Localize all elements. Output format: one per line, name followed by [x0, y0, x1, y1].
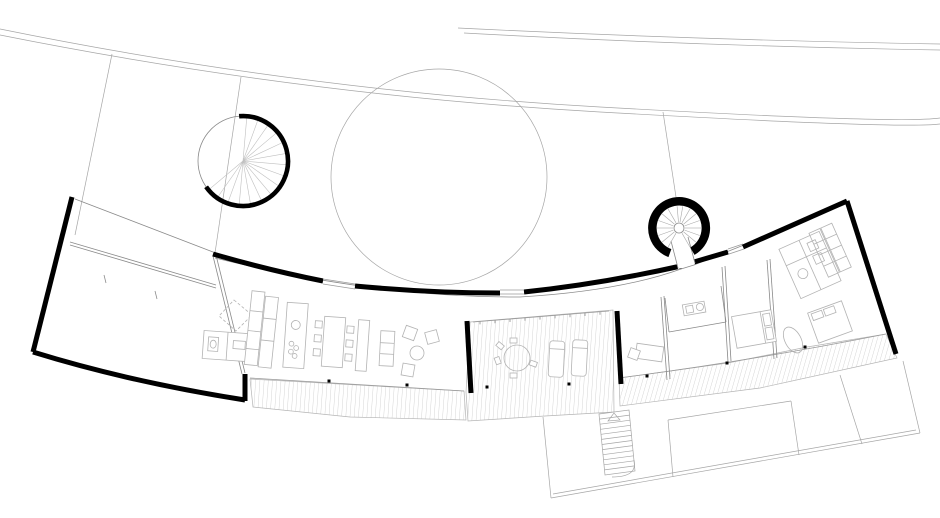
- sideboard: [355, 320, 370, 372]
- bed: [808, 301, 853, 343]
- lower-terrace-edge: [903, 361, 920, 433]
- north-wall: [743, 201, 847, 247]
- skylight-diamond: [219, 300, 252, 331]
- sofa: [379, 331, 395, 367]
- garage-inner-line: [70, 242, 216, 285]
- armchair: [401, 363, 415, 377]
- floor-plan-page: [0, 0, 940, 518]
- terrace-east-wall: [617, 311, 621, 384]
- bathroom-left: [202, 331, 252, 362]
- lower-terrace-edge: [551, 433, 920, 498]
- upper-path-line: [458, 28, 940, 44]
- stair-wall-arc: [206, 116, 288, 206]
- window-sill-line: [215, 204, 846, 297]
- exterior-stairs: [599, 410, 635, 477]
- stair-newel: [674, 223, 684, 233]
- bedroom-partition: [770, 259, 777, 358]
- stair-treads: [600, 415, 635, 470]
- bedroom-desk: [628, 343, 664, 362]
- garage-west-wall: [33, 197, 72, 352]
- garage-inner-line: [70, 245, 216, 288]
- site-boundary-lines: [0, 28, 940, 253]
- kitchen-cabinets: [244, 291, 279, 368]
- plot-boundary-line: [75, 54, 112, 235]
- spiral-staircase-left: [198, 116, 288, 206]
- north-wall: [213, 254, 323, 281]
- living-room-sofa-set: [379, 325, 439, 377]
- tick-mark: [155, 291, 157, 299]
- central-terrace-deck: [466, 310, 614, 421]
- bedroom-partition: [664, 296, 670, 379]
- floor-plan-drawing: [0, 0, 940, 518]
- basin: [796, 267, 809, 280]
- lower-terrace-divider: [791, 401, 799, 455]
- road-edge-line: [0, 35, 940, 125]
- dining-table: [312, 316, 354, 369]
- wardrobe: [809, 223, 851, 277]
- road-edge-line: [0, 29, 940, 120]
- bedroom-partition: [725, 266, 731, 361]
- upper-path-line: [464, 33, 940, 50]
- tick-mark: [104, 275, 106, 283]
- lower-terrace-edge: [553, 430, 916, 494]
- lower-terrace-divider: [668, 420, 673, 477]
- kitchen-island: [283, 302, 308, 368]
- north-wall: [694, 252, 728, 262]
- lower-terrace-edge: [543, 417, 551, 498]
- plot-boundary-line: [215, 77, 241, 253]
- sink: [233, 341, 246, 350]
- east-wall: [847, 201, 896, 354]
- north-wall: [355, 286, 500, 293]
- armchair: [425, 330, 440, 345]
- plot-boundary-line: [663, 112, 676, 197]
- lower-terrace-divider: [668, 401, 791, 420]
- coffee-table: [410, 346, 424, 360]
- bathroom-wall: [669, 322, 726, 332]
- armchair: [402, 325, 417, 340]
- master-bathroom: [779, 231, 841, 298]
- garage-front-line: [75, 199, 213, 252]
- deck-band-living: [250, 379, 466, 420]
- lower-terrace-divider: [840, 375, 862, 444]
- bed: [732, 310, 777, 348]
- bathroom-1-fixtures: [682, 301, 706, 316]
